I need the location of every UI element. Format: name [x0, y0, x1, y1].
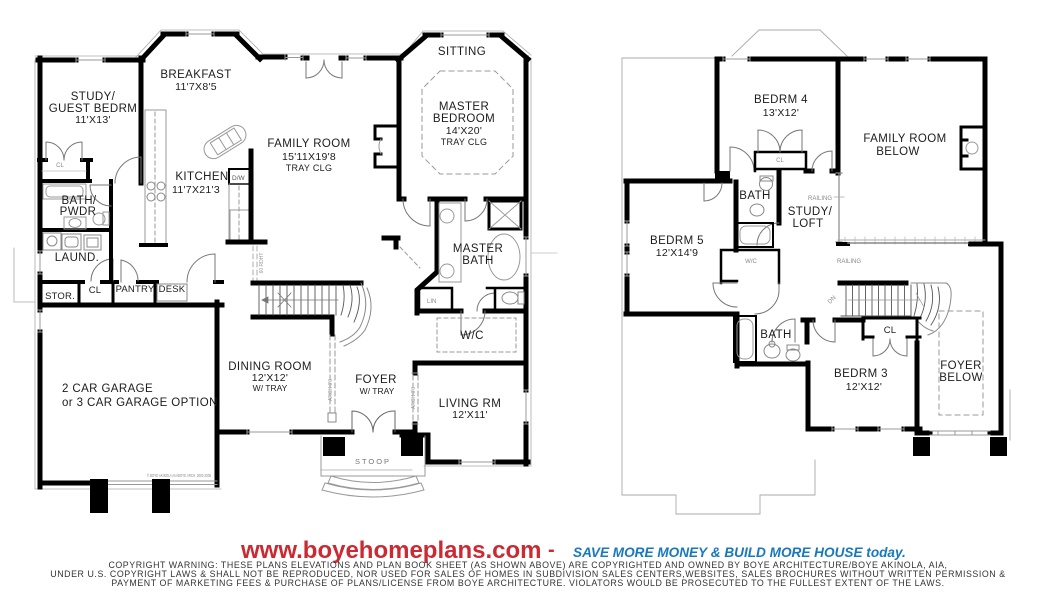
svg-text:12'X11': 12'X11': [452, 409, 488, 421]
svg-text:11'X13': 11'X13': [75, 114, 111, 126]
svg-text:TRAY CLG: TRAY CLG: [441, 137, 488, 147]
svg-text:MASTER: MASTER: [453, 243, 503, 255]
svg-text:SITTING: SITTING: [438, 46, 486, 58]
svg-text:FAMILY ROOM: FAMILY ROOM: [267, 138, 350, 150]
svg-text:CL: CL: [776, 158, 784, 164]
svg-text:BEDRM 3: BEDRM 3: [834, 368, 888, 380]
svg-text:LIN: LIN: [427, 299, 436, 305]
svg-text:KITCHEN: KITCHEN: [175, 171, 228, 183]
svg-text:BATH: BATH: [760, 329, 791, 341]
svg-text:2 CAR GARAGE: 2 CAR GARAGE: [62, 383, 153, 395]
svg-text:© BOYE AKINOLA AIA/BOYE ARCH.: © BOYE AKINOLA AIA/BOYE ARCH. 2003-2005: [147, 473, 211, 478]
svg-text:PAYMENT OF MARKETING FEES & PU: PAYMENT OF MARKETING FEES & PURCHASE OF …: [111, 578, 944, 588]
svg-text:MASTER: MASTER: [439, 101, 489, 113]
svg-text:-: -: [548, 539, 555, 561]
svg-text:SAVE MORE MONEY & BUILD MORE H: SAVE MORE MONEY & BUILD MORE HOUSE today…: [573, 545, 906, 560]
svg-text:LAUND.: LAUND.: [55, 252, 100, 264]
svg-text:60 RDHT: 60 RDHT: [259, 253, 265, 274]
svg-text:15'11X19'8: 15'11X19'8: [282, 151, 336, 163]
svg-text:CL: CL: [89, 285, 102, 296]
svg-text:11'7X21'3: 11'7X21'3: [172, 184, 220, 196]
svg-text:CL: CL: [56, 163, 64, 169]
svg-text:PWDR: PWDR: [60, 206, 97, 218]
svg-text:STUDY/: STUDY/: [71, 91, 116, 103]
svg-text:TRAY CLG: TRAY CLG: [286, 163, 333, 173]
svg-text:12'X14'9: 12'X14'9: [656, 247, 699, 259]
svg-text:RAILING: RAILING: [808, 196, 832, 202]
svg-text:BATH: BATH: [462, 255, 493, 267]
svg-text:or 3 CAR GARAGE OPTION: or 3 CAR GARAGE OPTION: [62, 397, 218, 409]
svg-text:12'X12': 12'X12': [846, 381, 882, 393]
svg-text:STOOP: STOOP: [355, 457, 391, 466]
svg-text:BATH: BATH: [739, 190, 770, 202]
svg-text:STOR.: STOR.: [45, 291, 75, 302]
svg-text:W/C: W/C: [745, 259, 757, 265]
svg-text:W/C: W/C: [460, 330, 484, 342]
svg-text:BELOW: BELOW: [939, 372, 983, 384]
svg-text:BREAKFAST: BREAKFAST: [160, 69, 231, 81]
svg-text:BEDRM 4: BEDRM 4: [754, 94, 808, 106]
svg-text:FAMILY ROOM: FAMILY ROOM: [863, 133, 946, 145]
svg-text:BELOW: BELOW: [876, 146, 920, 158]
svg-text:BEDRM 5: BEDRM 5: [650, 235, 704, 247]
svg-text:FOYER: FOYER: [940, 360, 982, 372]
svg-text:RAILING: RAILING: [837, 259, 861, 265]
svg-text:LOFT: LOFT: [793, 218, 824, 230]
svg-text:D/W: D/W: [232, 175, 246, 182]
svg-text:ARCH 0'0: ARCH 0'0: [328, 379, 334, 401]
svg-text:ARCH 0'0: ARCH 0'0: [411, 387, 417, 409]
svg-text:13'X12': 13'X12': [763, 107, 799, 119]
svg-text:W/ TRAY: W/ TRAY: [360, 386, 395, 396]
svg-text:BEDROOM: BEDROOM: [433, 113, 495, 125]
svg-text:PANTRY: PANTRY: [116, 284, 155, 295]
svg-text:11'7X8'5: 11'7X8'5: [175, 81, 217, 93]
svg-text:DESK: DESK: [159, 284, 186, 295]
svg-text:CL: CL: [884, 325, 897, 336]
svg-text:14'X20': 14'X20': [446, 125, 482, 137]
svg-text:W/ TRAY: W/ TRAY: [253, 383, 288, 393]
svg-text:DN: DN: [827, 295, 837, 305]
svg-text:STUDY/: STUDY/: [788, 206, 833, 218]
svg-text:FOYER: FOYER: [355, 374, 397, 386]
